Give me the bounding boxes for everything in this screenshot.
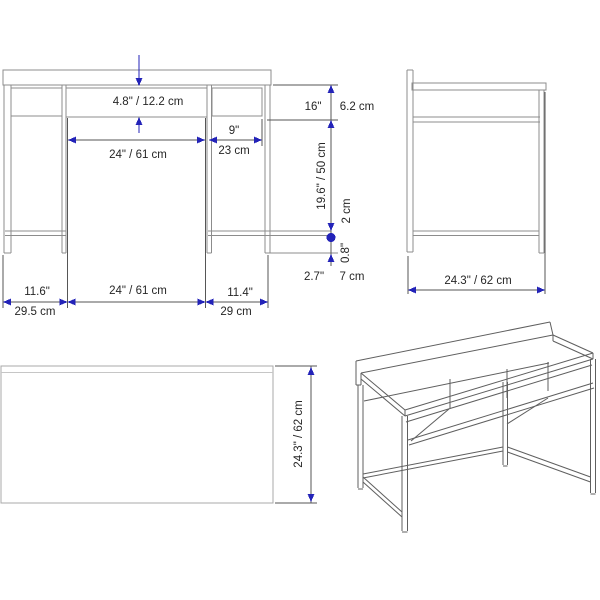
stretcher-tube-marker-dot bbox=[327, 233, 336, 242]
front-view: 4.8" / 12.2 cm 24" / 61 cm 9" 23 cm 16" … bbox=[3, 55, 374, 318]
dim-shelf-opening-height: 4.8" / 12.2 cm bbox=[113, 96, 184, 108]
dim-right-section-width-cm: 29 cm bbox=[220, 306, 251, 318]
iso-shelf bbox=[364, 362, 594, 445]
desk-dimension-drawing: 4.8" / 12.2 cm 24" / 61 cm 9" 23 cm 16" … bbox=[0, 0, 600, 600]
dim-tube-thickness-in: 0.8" bbox=[340, 243, 352, 263]
iso-riser-panel bbox=[356, 322, 553, 385]
side-desktop-band bbox=[412, 83, 546, 90]
dim-top-section-height-cm: 6.2 cm bbox=[340, 101, 375, 113]
front-desktop-band bbox=[3, 70, 271, 85]
front-right-compartment bbox=[212, 88, 262, 116]
dim-middle-section-width-bottom: 24" / 61 cm bbox=[109, 285, 167, 297]
iso-stretcher-bars bbox=[363, 447, 591, 517]
dim-leg-height: 19.6" / 50 cm bbox=[316, 142, 328, 209]
side-view: 24.3" / 62 cm bbox=[407, 70, 546, 294]
dim-right-opening-width-cm: 23 cm bbox=[218, 145, 249, 157]
dim-foot-clearance-cm: 7 cm bbox=[340, 271, 365, 283]
front-dimension-arrows bbox=[3, 78, 336, 306]
dim-middle-opening-width-top: 24" / 61 cm bbox=[109, 149, 167, 161]
dim-tube-thickness-cm: 2 cm bbox=[341, 199, 353, 224]
technical-drawing-page: 4.8" / 12.2 cm 24" / 61 cm 9" 23 cm 16" … bbox=[0, 0, 600, 600]
dim-top-section-height-in: 16" bbox=[305, 101, 322, 113]
dim-right-section-width-in: 11.4" bbox=[227, 287, 253, 299]
top-view: 24.3" / 62 cm bbox=[1, 366, 317, 503]
dim-foot-clearance-in: 2.7" bbox=[304, 271, 324, 283]
dim-top-depth: 24.3" / 62 cm bbox=[293, 400, 305, 467]
dim-left-section-width-cm: 29.5 cm bbox=[15, 306, 56, 318]
iso-legs bbox=[358, 359, 596, 532]
front-stretcher-bars bbox=[5, 231, 338, 253]
isometric-view bbox=[356, 322, 596, 532]
dim-right-opening-width-in: 9" bbox=[229, 125, 239, 137]
front-legs bbox=[4, 85, 270, 253]
top-view-desktop-outline bbox=[1, 366, 273, 503]
front-dimension-lines bbox=[3, 55, 338, 308]
dim-side-depth: 24.3" / 62 cm bbox=[444, 275, 511, 287]
front-left-compartment bbox=[11, 88, 62, 116]
dim-left-section-width-in: 11.6" bbox=[24, 286, 50, 298]
side-frame bbox=[407, 70, 544, 253]
